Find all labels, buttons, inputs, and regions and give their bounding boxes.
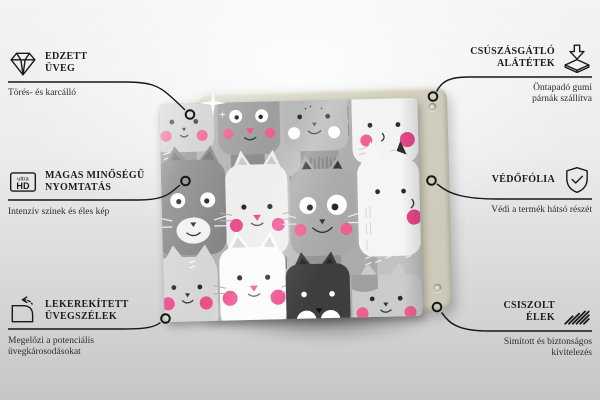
shield-check-icon: [562, 165, 592, 195]
feature-subtitle: Törés- és karcálló: [8, 88, 156, 99]
cat-top-4: [351, 98, 419, 164]
glass-panel-cat-print: [159, 98, 422, 322]
svg-text:HD: HD: [16, 181, 30, 191]
feature-title: VÉDŐFÓLIA: [492, 174, 555, 186]
arrow-down-pad-icon: [562, 43, 592, 73]
feature-anti-slip-pads: CSÚSZÁSGÁTLÓ ALÁTÉTEK Öntapadó gumi párn…: [444, 39, 592, 105]
cat-top-1: [159, 98, 214, 153]
cat-pattern-illustration: [159, 98, 422, 322]
feature-protective-film: VÉDŐFÓLIA Védi a termék hátsó részét: [444, 161, 592, 216]
feature-title: LEKEREKÍTETT ÜVEGSZÉLEK: [45, 299, 129, 323]
screw-hole: [433, 284, 441, 292]
feature-high-quality-print: ultra HD MAGAS MINŐSÉGŰ NYOMTATÁS Intenz…: [8, 163, 156, 218]
feature-title: CSISZOLT ÉLEK: [503, 300, 555, 324]
feature-subtitle: Intenzív színek és éles kép: [8, 207, 156, 218]
feature-title: EDZETT ÜVEG: [45, 51, 87, 75]
screw-hole: [428, 103, 436, 111]
feature-subtitle: Védi a termék hátsó részét: [444, 205, 592, 216]
feature-subtitle: Öntapadó gumi párnák szállítva: [444, 83, 592, 105]
cat-top-3: [283, 98, 349, 152]
diamond-icon: [8, 48, 38, 78]
feature-title: CSÚSZÁSGÁTLÓ ALÁTÉTEK: [470, 46, 555, 70]
diagonal-hatch-icon: [562, 297, 592, 327]
feature-subtitle: Megelőzi a potenciális üvegkárosodásokat: [8, 336, 156, 358]
feature-rounded-edges: LEKEREKÍTETT ÜVEGSZÉLEK Megelőzi a poten…: [8, 292, 156, 358]
rounded-corner-icon: [8, 296, 38, 326]
feature-title: MAGAS MINŐSÉGŰ NYOMTATÁS: [45, 170, 144, 194]
ultra-hd-icon: ultra HD: [8, 167, 38, 197]
feature-tempered-glass: EDZETT ÜVEG Törés- és karcálló: [8, 44, 156, 99]
product-infographic: EDZETT ÜVEG Törés- és karcálló ultra HD …: [0, 0, 600, 400]
cat-top-2: [217, 98, 281, 155]
